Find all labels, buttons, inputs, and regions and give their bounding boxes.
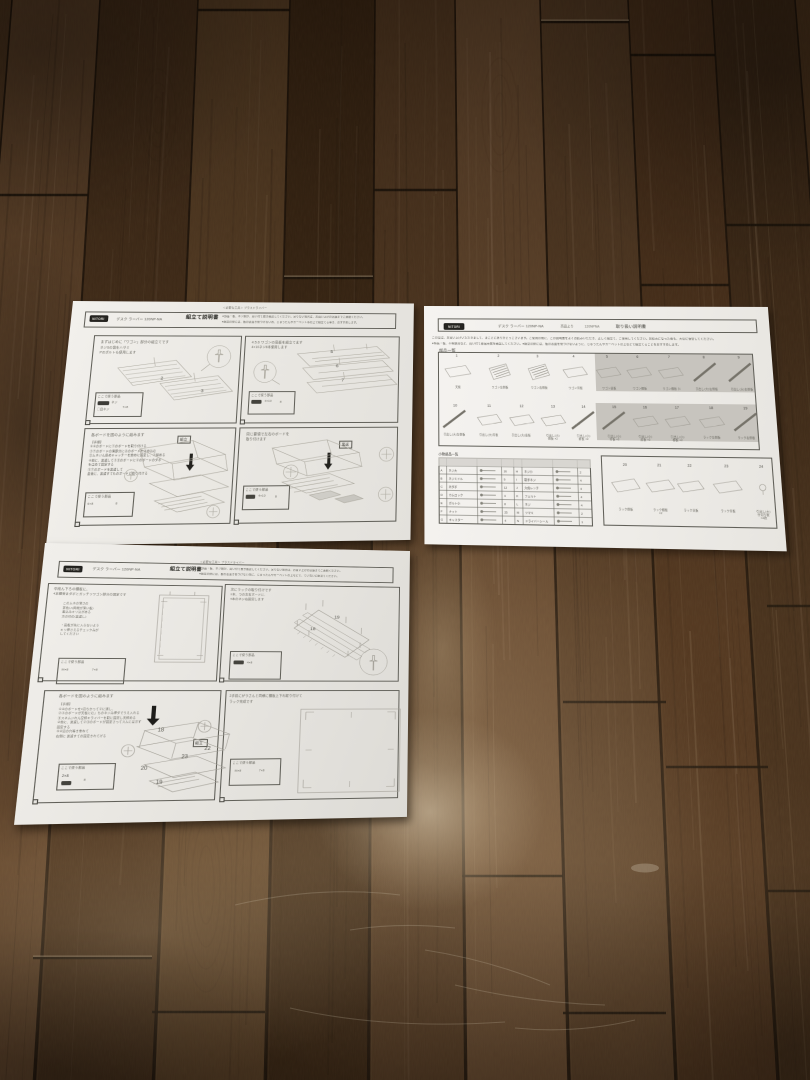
- svg-text:フェルト: フェルト: [525, 494, 537, 499]
- svg-text:4: 4: [505, 518, 507, 523]
- svg-text:18: 18: [157, 727, 164, 733]
- svg-text:9: 9: [504, 477, 506, 481]
- svg-text:7: 7: [341, 377, 344, 383]
- svg-text:ネジ: ネジ: [525, 502, 531, 507]
- svg-text:4: 4: [580, 487, 582, 492]
- svg-text:5: 5: [330, 349, 333, 355]
- svg-text:ナット: ナット: [449, 509, 458, 514]
- svg-text:20: 20: [140, 765, 147, 772]
- svg-text:ボルト小: ボルト小: [449, 501, 461, 506]
- svg-text:19: 19: [156, 779, 163, 786]
- svg-text:L: L: [517, 502, 519, 507]
- svg-text:H: H: [516, 469, 518, 473]
- svg-text:B: B: [441, 476, 443, 480]
- svg-text:D: D: [441, 493, 443, 498]
- svg-text:4: 4: [580, 478, 582, 483]
- svg-text:ドライバーシール: ドライバーシール: [525, 519, 549, 524]
- svg-text:I: I: [516, 477, 517, 481]
- svg-text:2: 2: [580, 470, 582, 475]
- svg-text:取手ネジ: 取手ネジ: [524, 478, 536, 483]
- svg-text:18: 18: [310, 626, 316, 631]
- svg-text:ネジ小: ネジ小: [524, 469, 533, 474]
- svg-text:ツマミ: ツマミ: [525, 511, 534, 516]
- svg-text:E: E: [441, 501, 443, 506]
- svg-text:16: 16: [504, 469, 508, 474]
- svg-text:ネジ大: ネジ大: [449, 468, 458, 473]
- svg-text:2: 2: [581, 511, 583, 516]
- svg-text:4: 4: [504, 494, 506, 499]
- svg-text:キャスター: キャスター: [449, 517, 464, 522]
- svg-text:F: F: [441, 509, 443, 514]
- svg-text:六角レンチ: 六角レンチ: [524, 486, 539, 491]
- svg-text:25: 25: [504, 510, 508, 515]
- svg-text:23: 23: [181, 754, 188, 760]
- svg-text:12: 12: [504, 485, 508, 490]
- svg-text:K: K: [516, 494, 518, 499]
- svg-text:8: 8: [504, 502, 506, 507]
- svg-text:J: J: [516, 486, 518, 491]
- svg-text:ネジミドル: ネジミドル: [449, 476, 464, 481]
- svg-text:木ダボ: 木ダボ: [449, 485, 458, 490]
- svg-text:4: 4: [580, 495, 582, 500]
- svg-text:22: 22: [204, 746, 211, 752]
- svg-text:1: 1: [581, 520, 583, 525]
- svg-text:M: M: [517, 510, 519, 515]
- svg-text:19: 19: [334, 615, 340, 620]
- svg-text:カムロック: カムロック: [449, 493, 464, 498]
- svg-text:A: A: [440, 468, 442, 472]
- svg-text:6: 6: [336, 363, 339, 369]
- svg-text:N: N: [517, 519, 519, 524]
- svg-text:4: 4: [581, 503, 583, 508]
- svg-text:C: C: [441, 484, 443, 488]
- svg-text:G: G: [441, 517, 443, 522]
